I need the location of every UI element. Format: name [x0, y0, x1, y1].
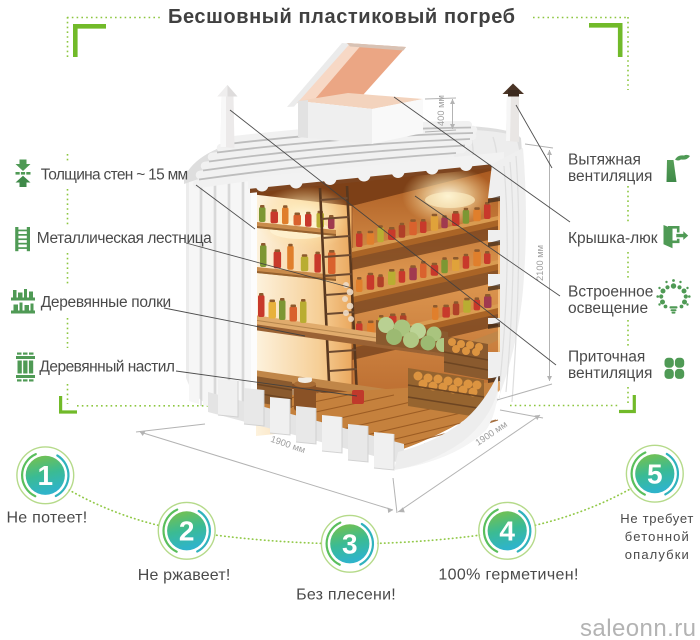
- svg-text:Деревянный настил: Деревянный настил: [39, 359, 175, 376]
- svg-text:Не требует: Не требует: [620, 511, 693, 526]
- svg-text:Крышка-люк: Крышка-люк: [568, 230, 658, 247]
- svg-text:Не ржавеет!: Не ржавеет!: [138, 567, 231, 584]
- svg-text:1: 1: [38, 460, 54, 491]
- svg-text:опалубки: опалубки: [625, 547, 689, 562]
- svg-text:бетонной: бетонной: [625, 529, 689, 544]
- svg-text:2100 мм: 2100 мм: [535, 245, 545, 281]
- svg-text:100% герметичен!: 100% герметичен!: [438, 567, 578, 584]
- svg-text:5: 5: [647, 459, 663, 490]
- svg-text:вентиляция: вентиляция: [568, 365, 652, 382]
- svg-text:2: 2: [179, 516, 195, 547]
- svg-text:Вытяжная: Вытяжная: [568, 152, 641, 169]
- svg-text:Толщина стен ~ 15 мм: Толщина стен ~ 15 мм: [41, 167, 189, 184]
- svg-text:Приточная: Приточная: [568, 349, 645, 366]
- svg-text:вентиляция: вентиляция: [568, 168, 652, 185]
- svg-text:Без плесени!: Без плесени!: [296, 586, 396, 603]
- svg-text:400 мм: 400 мм: [436, 95, 446, 126]
- svg-text:saleonn.ru: saleonn.ru: [580, 615, 696, 640]
- svg-text:Деревянные полки: Деревянные полки: [41, 294, 172, 311]
- svg-text:Не потеет!: Не потеет!: [6, 510, 87, 527]
- svg-text:4: 4: [499, 516, 515, 547]
- svg-text:Встроенное: Встроенное: [568, 284, 653, 301]
- svg-text:Бесшовный пластиковый погреб: Бесшовный пластиковый погреб: [168, 6, 515, 28]
- svg-text:Металлическая лестница: Металлическая лестница: [37, 230, 212, 247]
- svg-text:освещение: освещение: [568, 300, 648, 317]
- svg-text:3: 3: [342, 529, 358, 560]
